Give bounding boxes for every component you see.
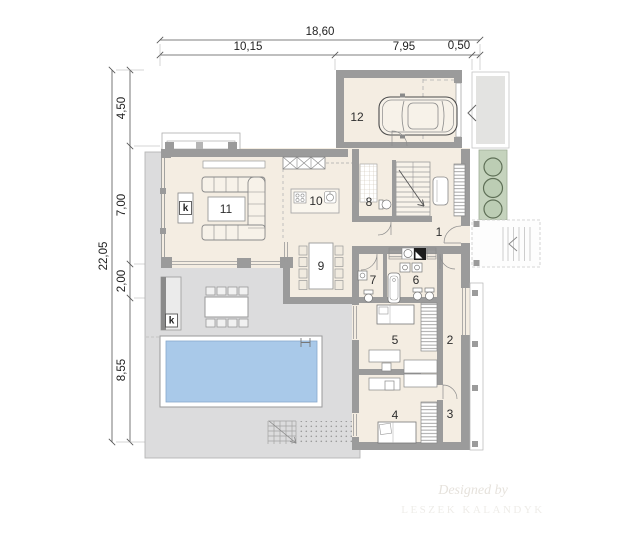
fireplace-marker: k — [183, 203, 189, 214]
dim-top-total: 18,60 — [306, 26, 335, 38]
floor-plan-page: k — [0, 0, 638, 556]
watermark-line1: Designed by — [437, 483, 508, 498]
hall-bench — [433, 177, 448, 205]
stove-icon — [294, 192, 306, 203]
hall-wardrobe — [454, 164, 465, 216]
chair — [385, 381, 394, 390]
room-label-wc: 7 — [370, 273, 377, 287]
room-label-corridor: 2 — [447, 333, 454, 347]
bush-icon — [484, 179, 503, 198]
car-icon — [379, 94, 457, 139]
room-label-dining: 9 — [318, 259, 325, 273]
outdoor-fireplace-marker: k — [169, 316, 175, 327]
room-label-bedroom2: 4 — [392, 408, 399, 422]
toilet-icon — [364, 290, 373, 302]
floor-plan-drawing: k — [0, 0, 638, 556]
outdoor-fireplace: k — [161, 277, 181, 330]
room-label-wardrobe: 3 — [447, 407, 454, 421]
outdoor-table — [205, 297, 248, 317]
desk — [369, 378, 400, 390]
watermark-line2: LESZEK KALANDYK — [401, 504, 545, 516]
toilet-icon — [379, 200, 391, 209]
dim-left-seg2: 7,00 — [116, 194, 128, 216]
bed-icon — [378, 422, 416, 443]
dim-top-seg3: 0,50 — [448, 40, 470, 52]
dim-top-seg1: 10,15 — [234, 41, 263, 53]
planting-bed — [479, 150, 507, 220]
window-bay — [162, 133, 240, 150]
bathtub-icon — [388, 273, 400, 303]
staircase — [396, 162, 430, 216]
room-label-garage: 12 — [350, 110, 364, 124]
dim-left-seg4: 8,55 — [116, 359, 128, 381]
driveway — [472, 72, 509, 148]
room-label-living: 11 — [220, 202, 233, 216]
wall-shelf — [203, 161, 265, 168]
dim-left-seg3: 2,00 — [116, 270, 128, 292]
wardrobe-shelving — [421, 402, 437, 443]
entry-steps — [472, 220, 540, 267]
room-label-kitchen: 10 — [309, 194, 323, 208]
bush-icon — [484, 200, 502, 218]
room-label-bathroom: 6 — [413, 273, 420, 287]
dim-top-seg2: 7,95 — [393, 41, 415, 53]
garden-path — [297, 421, 356, 444]
watermark: Designed by LESZEK KALANDYK — [401, 483, 545, 516]
shower-unit-icon — [414, 248, 426, 260]
sideboard — [404, 374, 437, 387]
sink-icon — [325, 192, 337, 204]
east-window-band — [470, 283, 483, 450]
fireplace: k — [178, 193, 193, 223]
chair — [382, 363, 391, 371]
bush-icon — [484, 158, 502, 176]
wardrobe-shelving — [421, 303, 437, 351]
pool — [160, 336, 322, 407]
dimension-top: 18,60 10,15 7,95 0,50 — [157, 26, 483, 70]
sideboard — [404, 360, 437, 373]
room-label-hall: 1 — [436, 225, 443, 239]
pool-water — [166, 341, 317, 402]
room-label-shower: 8 — [366, 195, 373, 209]
room-label-bedroom1: 5 — [392, 333, 399, 347]
bed-icon — [377, 305, 414, 324]
dim-left-total: 22,05 — [98, 242, 110, 271]
desk — [369, 350, 400, 362]
dim-left-seg1: 4,50 — [116, 97, 128, 119]
